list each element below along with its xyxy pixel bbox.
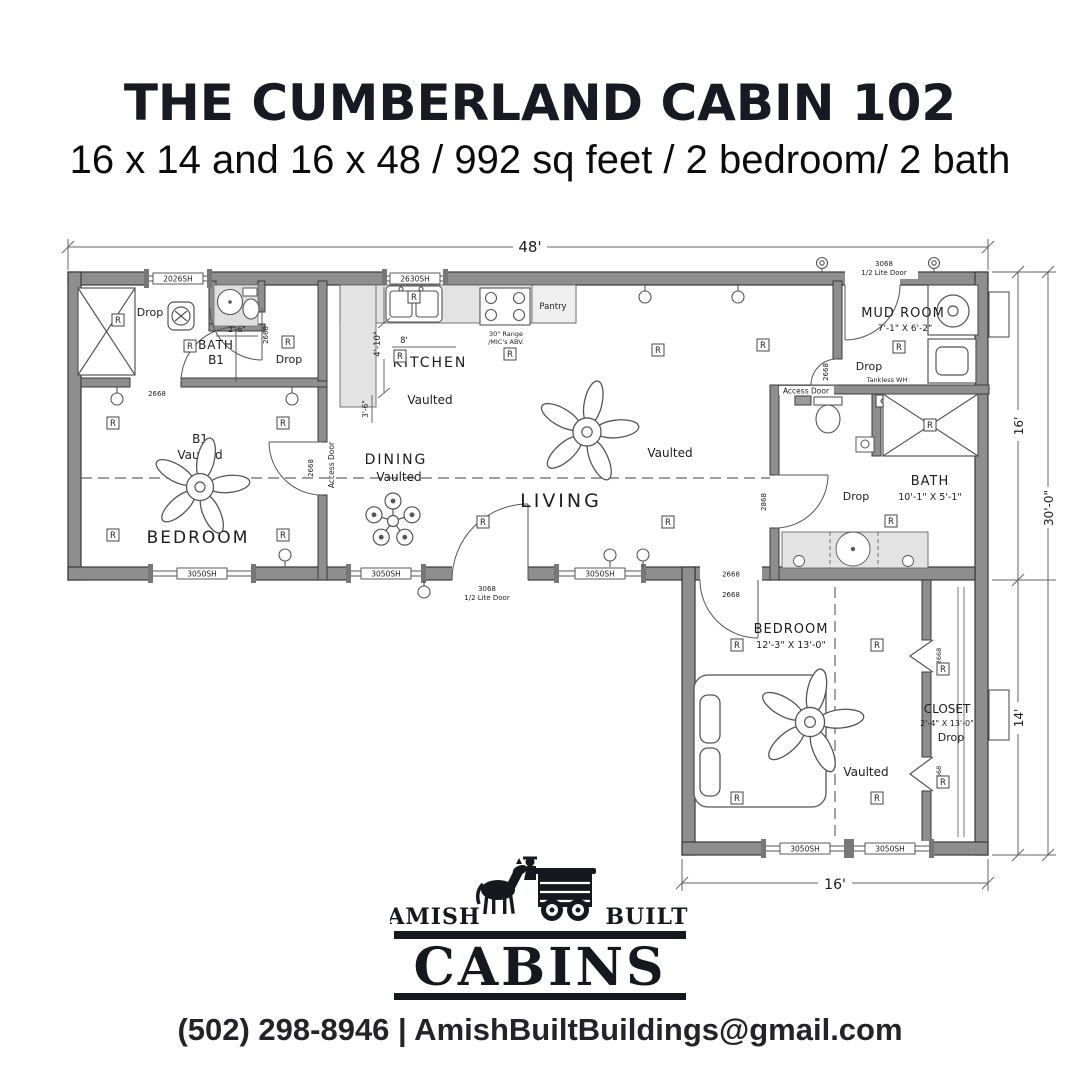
room-bath-b1-unit: B1 <box>208 353 224 367</box>
door-label: 2668 <box>148 390 166 398</box>
dim-16ft-right: 16' <box>1012 417 1026 436</box>
room-bath-name: BATH <box>911 474 950 489</box>
receptacle-symbol: R <box>731 792 743 804</box>
access-door-label: Access Door <box>327 441 336 488</box>
horse-and-wagon-icon <box>478 857 596 922</box>
room-b1-name: BEDROOM <box>147 528 250 548</box>
dim-kitchen-run: 8' <box>400 336 408 346</box>
floor-plan: 48' 16' 30'-0" 14' 16' 4'-10" 8' 3'-6" 2… <box>0 225 1080 905</box>
receptacle-symbol: R <box>937 663 949 675</box>
svg-text:R: R <box>411 293 417 303</box>
receptacle-symbol: R <box>893 341 905 353</box>
dim-kitchen-side: 3'-6" <box>361 400 370 418</box>
svg-text:R: R <box>888 517 894 527</box>
toilet-icon <box>243 299 259 319</box>
vanity <box>782 532 928 568</box>
room-bath-b1-drop2: Drop <box>276 353 302 366</box>
room-bath-drop: Drop <box>843 490 869 503</box>
door-label: 2668 <box>722 571 740 579</box>
svg-text:R: R <box>927 421 933 431</box>
room-bedroom2-size: 12'-3" X 13'-0" <box>756 640 826 651</box>
room-bedroom2-name: BEDROOM <box>754 622 829 637</box>
kitchen-pantry: Pantry <box>539 302 566 312</box>
room-mud-name: MUD ROOM <box>861 306 945 321</box>
room-bath-size: 10'-1" X 5'-1" <box>898 492 962 503</box>
contact-info: (502) 298-8946 | AmishBuiltBuildings@gma… <box>0 1012 1080 1048</box>
logo-bar-bottom <box>394 993 686 1000</box>
receptacle-symbol: R <box>282 336 294 348</box>
window-label: 2026SH <box>163 275 193 284</box>
receptacle-symbol: R <box>662 516 674 528</box>
kitchen-range2: /MIC's ABV. <box>488 338 524 346</box>
svg-text:R: R <box>280 531 286 541</box>
page-title: THE CUMBERLAND CABIN 102 <box>0 74 1080 132</box>
room-dining-ceiling: Vaulted <box>376 470 421 484</box>
window-label: 3050SH <box>187 570 217 579</box>
door-label: 2668 <box>307 459 315 477</box>
page-subtitle: 16 x 14 and 16 x 48 / 992 sq feet / 2 be… <box>0 138 1080 183</box>
svg-text:R: R <box>187 342 193 352</box>
room-living-name: LIVING <box>520 490 602 512</box>
receptacle-symbol: R <box>871 792 883 804</box>
svg-text:R: R <box>734 641 740 651</box>
room-bath-b1-name: BATH <box>198 338 234 352</box>
receptacle-symbol: R <box>277 529 289 541</box>
dim-kitchen-depth: 4'-10" <box>373 331 383 357</box>
receptacle-symbol: R <box>107 417 119 429</box>
receptacle-symbol: R <box>408 291 420 303</box>
brand-logo: AMISH BUILT <box>0 852 1080 1002</box>
room-mud-drop: Drop <box>856 360 882 373</box>
svg-text:R: R <box>665 518 671 528</box>
room-dining-name: DINING <box>365 452 428 468</box>
door-label: 1/2 Lite Door <box>464 594 510 602</box>
window-label: 3050SH <box>585 570 615 579</box>
svg-text:R: R <box>285 338 291 348</box>
toilet-icon <box>814 397 842 433</box>
svg-text:R: R <box>760 341 766 351</box>
door-label: 2868 <box>760 493 768 511</box>
door-label: 2668 <box>722 591 740 599</box>
bifold-door-icon <box>910 757 933 791</box>
exterior-units <box>989 292 1009 740</box>
range-icon <box>480 288 530 325</box>
svg-text:R: R <box>280 419 286 429</box>
logo-cabins: CABINS <box>413 937 666 998</box>
mud-tankless: Tankless WH <box>866 376 908 384</box>
receptacle-symbol: R <box>277 417 289 429</box>
receptacle-symbol: R <box>757 339 769 351</box>
sink-icon <box>856 437 874 452</box>
receptacle-symbol: R <box>937 776 949 788</box>
door-label: 3068 <box>875 260 893 268</box>
svg-text:R: R <box>110 419 116 429</box>
chandelier-icon <box>366 493 420 545</box>
exhaust-fan-icon <box>168 302 194 330</box>
room-bedroom2-ceiling: Vaulted <box>843 765 888 779</box>
svg-text:R: R <box>480 518 486 528</box>
svg-text:R: R <box>940 778 946 788</box>
svg-text:R: R <box>115 316 121 326</box>
page: THE CUMBERLAND CABIN 102 16 x 14 and 16 … <box>0 0 1080 1080</box>
room-closet-drop: Drop <box>938 731 964 744</box>
room-bath-b1-drop: Drop <box>137 306 163 319</box>
dim-bath-b1: 2'-6" <box>228 325 246 334</box>
svg-text:R: R <box>874 641 880 651</box>
door-label: 2668 <box>935 648 943 665</box>
window-label: 2630SH <box>400 275 430 284</box>
access-hatch <box>795 396 811 405</box>
receptacle-symbol: R <box>885 515 897 527</box>
access-door-label: Access Door <box>783 387 830 396</box>
kitchen-range1: 30" Range <box>489 330 523 338</box>
svg-text:R: R <box>874 794 880 804</box>
receptacle-symbol: R <box>652 344 664 356</box>
svg-text:R: R <box>896 343 902 353</box>
floor-plan-svg: 48' 16' 30'-0" 14' 16' 4'-10" 8' 3'-6" 2… <box>0 225 1080 905</box>
door-label: 1/2 Lite Door <box>861 269 907 277</box>
receptacle-symbol: R <box>504 348 516 360</box>
room-living-ceiling: Vaulted <box>647 446 692 460</box>
svg-text:R: R <box>110 531 116 541</box>
svg-text:R: R <box>940 665 946 675</box>
door-label: 2668 <box>822 363 830 381</box>
receptacle-symbol: R <box>394 350 406 362</box>
svg-text:R: R <box>507 350 513 360</box>
receptacle-symbol: R <box>112 314 124 326</box>
receptacle-symbol: R <box>107 529 119 541</box>
receptacle-symbol: R <box>477 516 489 528</box>
receptacle-symbol: R <box>731 639 743 651</box>
logo-built: BUILT <box>605 904 688 930</box>
room-mud-size: 7'-1" X 6'-2" <box>878 324 933 334</box>
bath-b1-toilet-room <box>214 285 259 326</box>
shower-b1 <box>78 288 135 375</box>
logo-amish: AMISH <box>390 904 481 930</box>
room-closet-name: CLOSET <box>924 702 971 716</box>
room-kitchen-ceiling: Vaulted <box>407 393 452 407</box>
receptacle-symbol: R <box>871 639 883 651</box>
receptacle-symbol: R <box>924 419 936 431</box>
room-closet-size: 2'-4" X 13'-0" <box>920 719 974 728</box>
bifold-door-icon <box>910 640 933 672</box>
door-label: 2668 <box>262 326 270 344</box>
svg-text:R: R <box>655 346 661 356</box>
ceiling-fan-icon <box>152 436 250 536</box>
svg-text:R: R <box>734 794 740 804</box>
ceiling-fan-icon <box>538 379 640 483</box>
window-label: 3050SH <box>371 570 401 579</box>
svg-text:R: R <box>397 352 403 362</box>
dim-48ft: 48' <box>518 238 541 256</box>
door-label: 3068 <box>478 585 496 593</box>
receptacle-symbol: R <box>184 340 196 352</box>
brand-logo-svg: AMISH BUILT <box>390 852 690 1002</box>
dim-30ft: 30'-0" <box>1042 490 1056 526</box>
dim-14ft: 14' <box>1012 709 1026 728</box>
